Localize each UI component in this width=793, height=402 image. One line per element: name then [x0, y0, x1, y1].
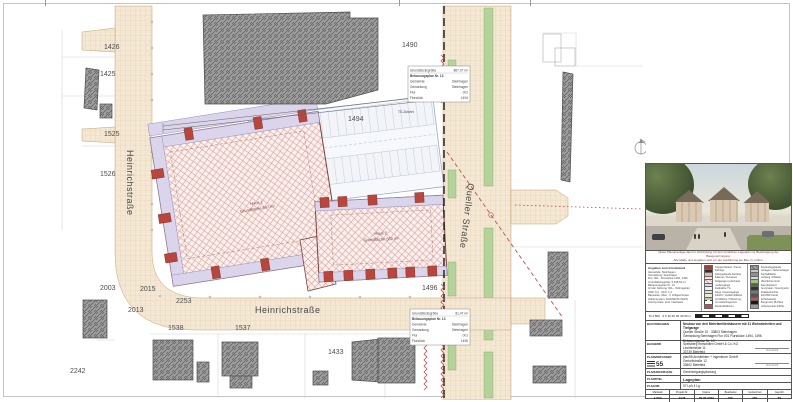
- box2-bplan: Bebauungsplan Nr. 13: [412, 317, 446, 321]
- box1-value: 867,07 m²: [454, 69, 468, 73]
- tg-entry-label: TG-Zufahrt: [398, 110, 414, 114]
- parcel-1425: 1425: [100, 71, 116, 78]
- rendered-person-2: [698, 234, 700, 239]
- plantitel-label: Plantitel: [646, 376, 681, 382]
- parcel-1433: 1433: [328, 349, 344, 356]
- legend-label: Stellplätze TG: [715, 287, 731, 290]
- signature-line: Unterschrift: [755, 348, 789, 352]
- info-box-1496: Grundstücksgröße 81,47 m² Bebauungsplan …: [410, 309, 470, 345]
- box2-l5: Flur: [412, 334, 418, 338]
- legend-label: Aufzüge: [715, 269, 725, 272]
- footer-value: MG: [719, 395, 742, 401]
- legend-label: Zufahrt / Verkehrsfläche: [715, 294, 743, 297]
- legend-label: Balkone / Terrassen: [715, 276, 738, 279]
- legend: Angaben zum Grundstück Gemeinde: Steinha…: [646, 264, 791, 312]
- footer-value: 2148: [670, 395, 693, 401]
- street-label-heinrich-h: Heinrichstraße: [255, 305, 321, 315]
- info-box-1494: Grundstücksgröße 867,07 m² Bebauungsplan…: [408, 66, 470, 102]
- scale-bar-graphic: [695, 314, 749, 319]
- parcel-2015: 2015: [140, 286, 156, 293]
- legend-label: SW-/RW-Kanal: [761, 294, 778, 297]
- site-plan-sheet: { "plan": { "street_names": { "heinrich_…: [0, 0, 793, 400]
- legend-swatch: [750, 304, 759, 309]
- rendered-house-3: [743, 191, 771, 222]
- footer-datum: Datum 05.05.2023: [695, 390, 719, 402]
- plantitel-value: Lageplan: [681, 376, 791, 382]
- box1-l4: Gemarkung: [410, 85, 427, 89]
- bauherr-label: Bauherr: [646, 341, 681, 353]
- parcel-2253: 2253: [176, 298, 192, 305]
- parcel-1490: 1490: [402, 42, 418, 49]
- box1-v4: Steinhagen: [452, 85, 468, 89]
- street-label-heinrich-v: Heinrichstraße: [125, 150, 135, 216]
- legend-label: Garagen / Nebenanlagen: [761, 269, 790, 272]
- legend-label: Treppenhäuser / Kerne: [715, 266, 742, 269]
- planverfasser-label: Planverfasser 55: [646, 354, 681, 368]
- phase-label: Planungsphase: [646, 369, 681, 375]
- legend-label: Abstandsflächen: [715, 305, 734, 308]
- legend-col-site-data: Angaben zum Grundstück Gemeinde: Steinha…: [646, 264, 702, 311]
- box1-v6: 1494: [461, 96, 468, 100]
- haus2-name: Haus 2: [374, 230, 388, 236]
- signature-line: Unterschrift: [755, 363, 789, 367]
- rendered-person-3: [724, 232, 726, 237]
- box2-v3: Steinhagen: [452, 323, 468, 327]
- north-arrow-icon: [635, 138, 646, 154]
- box2-value: 81,47 m²: [455, 312, 468, 316]
- legend-line: Grenzpunkte: amtl. Nachweis: [648, 301, 699, 304]
- legend-label: Laubengänge: [715, 284, 731, 287]
- rendered-car-1: [652, 234, 665, 240]
- parcel-1494: 1494: [348, 116, 364, 123]
- bauvorhaben-label: Bauvorhaben: [646, 321, 681, 340]
- footer-value: MG: [743, 395, 766, 401]
- rendered-lawn: [747, 235, 791, 250]
- rendered-car-2: [762, 231, 774, 237]
- parcel-2013: 2013: [128, 307, 144, 314]
- site-plan-drawing: Haus 1 Grundfläche 847 m² Haus 2 Grundfl…: [0, 0, 646, 400]
- rendered-house-1: [674, 190, 704, 222]
- box2-l4: Gemarkung: [412, 328, 429, 332]
- parcel-1537: 1537: [235, 325, 251, 332]
- legend-col-new: Treppenhäuser / Kerne Aufzüge Wohngebäud…: [702, 264, 748, 311]
- legend-label: Sichtdreiecke: [761, 298, 777, 301]
- legend-label: Gehweg / Pflaster: [761, 276, 782, 279]
- rendered-person-1: [694, 234, 696, 239]
- legend-label: Grundstücksgrenze: [715, 301, 738, 304]
- parcel-2003: 2003: [100, 285, 116, 292]
- legend-label: Baumbestand: [761, 284, 777, 287]
- outline-structures: [543, 34, 575, 66]
- bauvorhaben-line: Neubau von drei Mehrfamilienhäusern mit …: [683, 322, 789, 330]
- box2-v6: 1496: [461, 339, 468, 343]
- planverfasser-content: plan55 Architekten + Ingenieure GmbH Ger…: [681, 354, 791, 368]
- footer-value: TS: [768, 395, 791, 401]
- footer-value: 05.05.2023: [695, 395, 718, 401]
- legend-label: Bestandsgebäude: [761, 266, 782, 269]
- parcel-1526: 1526: [100, 171, 116, 178]
- phase-value: Genehmigungsplanung: [681, 369, 791, 375]
- box2-v4: Steinhagen: [452, 328, 468, 332]
- legend-label: öffentliches Grün: [761, 280, 781, 283]
- box1-l6: Flurstück: [410, 96, 423, 100]
- box2-l6: Flurstück: [412, 339, 425, 343]
- legend-label: Grenzstein / Grenzpunkt: [761, 287, 789, 290]
- legend-label: Tiefgarage (unterbaut): [715, 280, 741, 283]
- plannr-label: Plan Nr.: [646, 383, 681, 389]
- bauvorhaben-content: Neubau von drei Mehrfamilienhäusern mit …: [681, 321, 791, 340]
- title-table: Bauvorhaben Neubau von drei Mehrfamilien…: [646, 321, 791, 402]
- legend-label: Straßenleuchte: [761, 291, 779, 294]
- footer-massstab: Maßstab 1:500: [646, 390, 670, 402]
- box2-l3: Gemeinde: [412, 323, 427, 327]
- footer-geprueft: Geprüft TS: [768, 390, 791, 402]
- box1-v3: Steinhagen: [452, 80, 468, 84]
- legend-label: Baugrenze (B-Plan): [761, 301, 784, 304]
- footer-value: 1:500: [646, 395, 669, 401]
- footer-gezeichnet: Gezeichnet MG: [743, 390, 767, 402]
- parcel-1426: 1426: [104, 44, 120, 51]
- box1-bplan: Bebauungsplan Nr. 13: [410, 74, 444, 78]
- logo-text: 55: [656, 361, 663, 368]
- legend-label: Asphaltfläche: [761, 273, 777, 276]
- box1-v5: 001: [463, 91, 469, 95]
- note-line-2: Alle Maße und Angaben sind vor der Ausfü…: [649, 259, 788, 263]
- title-block: Diese Planunterlage dient in Verbindung …: [645, 163, 792, 399]
- parcel-1496: 1496: [422, 285, 438, 292]
- scale-bar: M 1:500 · 0 5 10 20 30 40 50 m: [646, 312, 791, 321]
- scale-text: M 1:500 · 0 5 10 20 30 40 50 m: [649, 314, 691, 318]
- box1-l5: Flur: [410, 91, 416, 95]
- logo-bars-icon: [647, 361, 655, 367]
- legend-label: Wege / Hauszugänge: [715, 291, 740, 294]
- haus2: Haus 2 Grundfläche 562 m²: [315, 191, 447, 282]
- legend-label: Höhenpunkte (NHN): [761, 305, 785, 308]
- parcel-2242: 2242: [70, 368, 86, 375]
- planverfasser-label-text: Planverfasser: [647, 355, 672, 359]
- box1-label: Grundstücksgröße: [410, 69, 436, 73]
- note-band: Diese Planunterlage dient in Verbindung …: [646, 251, 791, 264]
- box2-v5: 001: [463, 334, 469, 338]
- parcel-1538: 1538: [168, 325, 184, 332]
- footer-bearbeiter: Bearbeiter MG: [719, 390, 743, 402]
- legend-label: Grünfläche / Pflanzung: [715, 298, 741, 301]
- box1-l3: Gemeinde: [410, 80, 425, 84]
- footer-projektnr: Projekt-Nr. 2148: [670, 390, 694, 402]
- legend-swatch: [704, 304, 713, 309]
- plannr-value: 07 Lph 4 Lg: [681, 383, 791, 389]
- legend-label: Wohngebäude Neubau: [715, 273, 742, 276]
- legend-header: Angaben zum Grundstück: [648, 266, 699, 270]
- bauherr-content: Spelsberg Immobilien GmbH & Co. KG Lecht…: [681, 341, 791, 353]
- project-rendering: [646, 164, 791, 251]
- legend-col-existing: Bestandsgebäude Garagen / Nebenanlagen A…: [748, 264, 791, 311]
- box2-label: Grundstücksgröße: [412, 312, 438, 316]
- parcel-1525: 1525: [104, 131, 120, 138]
- side-street-branch: [511, 190, 568, 224]
- rendered-house-2: [708, 187, 740, 222]
- planverfasser-logo: 55: [647, 361, 679, 368]
